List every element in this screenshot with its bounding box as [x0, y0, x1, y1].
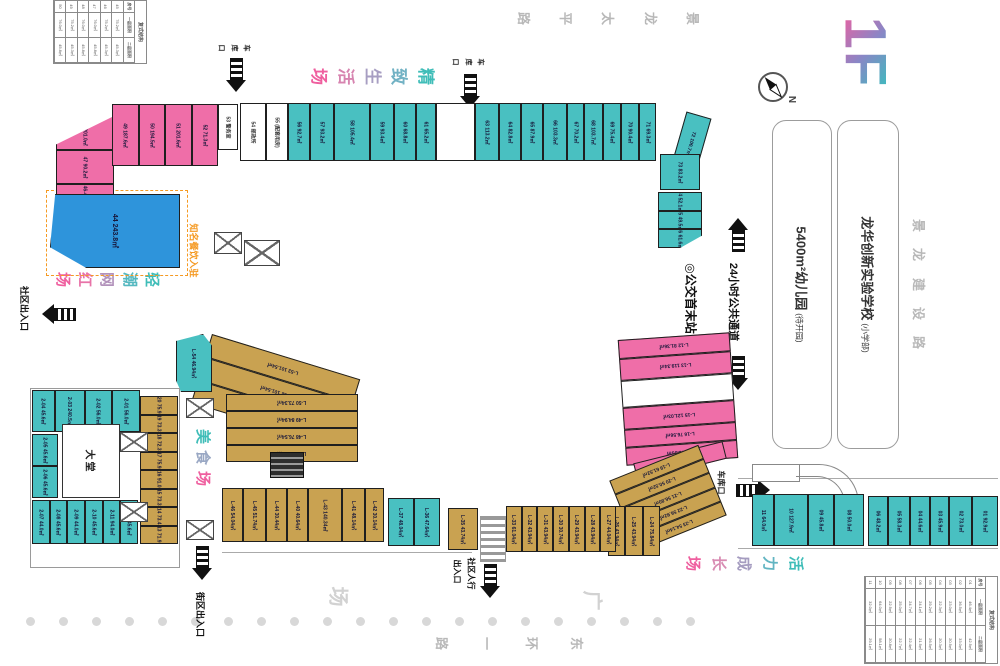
legend-cell: 二层面积	[976, 626, 985, 663]
unit-67[interactable]: 67 70.2㎡	[567, 103, 584, 161]
legend-cell: 45.3㎡	[112, 38, 122, 63]
stair-core-2	[244, 240, 280, 266]
char: 美	[193, 429, 214, 444]
unit-01[interactable]: 01 92.9㎡	[972, 496, 998, 546]
unit-2-16[interactable]: 2-16 91.0㎡	[140, 470, 178, 489]
unit-2-11[interactable]: 2-11 94.0㎡	[103, 500, 121, 544]
unit-L-45[interactable]: L-45 51.74㎡	[243, 488, 266, 542]
unit-64[interactable]: 64 82.8㎡	[499, 103, 521, 161]
tree-icon	[92, 617, 101, 626]
legend-cell: 76.0㎡	[55, 13, 65, 38]
unit-label: 2-15 73.3㎡	[155, 489, 162, 508]
char: 景	[684, 11, 703, 24]
unit-label: 2-05 45.6㎡	[42, 437, 49, 463]
duplex-legend-table-top: 复式结构房号一层面积二层面积4575.2㎡45.3㎡4675.2㎡45.3㎡47…	[53, 0, 147, 64]
tree-icon	[158, 617, 167, 626]
unit-label: 48 201.0㎡	[82, 121, 89, 145]
char: 成	[734, 555, 755, 570]
legend-cell: 02	[956, 577, 965, 589]
char: 路	[515, 11, 534, 24]
unit-68[interactable]: 68 103.7㎡	[584, 103, 602, 161]
unit-60[interactable]: 60 68.8㎡	[394, 103, 416, 161]
restaurant-callout-label: 知名餐饮入驻	[186, 216, 202, 284]
unit-label: 65 87.9㎡	[528, 121, 535, 143]
unit-label: 2-07 44.0㎡	[37, 509, 44, 535]
legend-row: 4675.2㎡45.3㎡	[100, 1, 111, 63]
unit-2-07[interactable]: 2-07 44.0㎡	[32, 500, 50, 544]
unit-L-29[interactable]: L-29 43.94㎡	[569, 506, 585, 552]
unit-label: L-27 44.04㎡	[605, 514, 612, 543]
unit-73: 73 83.2㎡	[660, 154, 700, 190]
unit-label: 2-19 73.3㎡	[155, 415, 162, 434]
tree-icon	[59, 617, 68, 626]
passage-up-arrow	[728, 218, 748, 252]
legend-cell: 76.0㎡	[89, 13, 99, 38]
legend-cell: 24.7㎡	[906, 589, 915, 626]
tree-icon	[26, 617, 35, 626]
escalator-block	[270, 452, 304, 478]
community-left-arrow	[42, 304, 76, 324]
unit-2-19[interactable]: 2-19 73.3㎡	[140, 415, 178, 434]
unit-L-46[interactable]: L-46 54.04㎡	[222, 488, 243, 542]
legend-cell: 50	[55, 1, 65, 13]
unit-2-10[interactable]: 2-10 45.6㎡	[85, 500, 103, 544]
unit-blank[interactable]	[436, 103, 474, 161]
legend-cell: 75.2㎡	[112, 13, 122, 38]
unit-label: 05 58.3㎡	[896, 510, 903, 532]
unit-label: 53 警务室	[225, 116, 232, 138]
road-top-jinglong-taiping: 景龙太平路	[518, 8, 700, 28]
unit-label: 76 61.6㎡	[677, 229, 684, 248]
unit-47[interactable]: 47 90.2㎡	[56, 150, 114, 184]
unit-label: 01 92.9㎡	[982, 510, 989, 532]
unit-09[interactable]: 09 45.8㎡	[808, 494, 834, 546]
cluster-right-col: 74 52.1㎡75 49.5㎡76 61.6㎡	[658, 192, 702, 248]
stair-core-3	[186, 398, 214, 418]
compass-north-label: N	[786, 92, 798, 106]
unit-50[interactable]: 50 194.5㎡	[139, 104, 166, 166]
unit-label: 2-16 91.0㎡	[155, 470, 162, 489]
kindergarten-parcel: 5400m²幼儿园(待开园)	[772, 120, 832, 449]
legend-row: 0236.5㎡33.0㎡	[955, 577, 965, 663]
legend-cell: 11	[866, 577, 875, 589]
legend-cell: 二层面积	[124, 38, 134, 63]
unit-label: L-53 101.54㎡	[266, 360, 299, 376]
legend-cell: 33.0㎡	[956, 626, 965, 663]
legend-row: 4776.0㎡45.8㎡	[88, 1, 99, 63]
unit-61[interactable]: 61 65.2㎡	[416, 103, 436, 161]
legend-cell: 20.8㎡	[886, 626, 895, 663]
unit-05[interactable]: 05 58.3㎡	[888, 496, 910, 546]
unit-2-20[interactable]: 2-20 75.9㎡	[140, 396, 178, 415]
unit-label: 03 45.9㎡	[936, 510, 943, 532]
legend-cell: 03	[946, 577, 955, 589]
char: 生	[362, 68, 387, 85]
unit-L-43[interactable]: L-43 140.34㎡	[308, 488, 342, 542]
unit-L-32[interactable]: L-32 43.94㎡	[522, 506, 538, 552]
tree-icon	[323, 617, 332, 626]
char: 口	[217, 45, 227, 52]
unit-71[interactable]: 71 69.3㎡	[639, 103, 656, 161]
unit-label: 54 邮政所	[249, 121, 256, 143]
char: 环	[523, 636, 542, 649]
unit-label: L-31 43.94㎡	[542, 514, 549, 543]
unit-label: L-33 61.04㎡	[510, 514, 517, 543]
char: 精	[415, 68, 440, 85]
legend-cell: 10	[876, 577, 885, 589]
unit-L-41[interactable]: L-41 48.14㎡	[342, 488, 365, 542]
legend-row: 0146.4㎡42.9㎡	[965, 577, 975, 663]
char: 库	[463, 59, 473, 66]
cluster-growth-b: 06 48.2㎡05 58.3㎡04 44.6㎡03 45.9㎡02 73.0㎡…	[868, 496, 998, 546]
unit-label: 04 44.6㎡	[917, 510, 924, 532]
unit-label: L-28 43.94㎡	[589, 514, 596, 543]
unit-label: 2-17 75.9㎡	[155, 452, 162, 471]
unit-08[interactable]: 08 50.0㎡	[834, 494, 864, 546]
tree-icon	[125, 617, 134, 626]
char: 场	[193, 471, 214, 486]
unit-label: 2-11 94.0㎡	[108, 509, 115, 535]
legend-cell: 房号	[976, 577, 985, 589]
unit-label: L-50 73.34㎡	[277, 399, 306, 406]
unit-label: L-42 30.14㎡	[371, 500, 378, 529]
unit-label: 73 83.2㎡	[677, 161, 684, 183]
legend-cell: 09	[886, 577, 895, 589]
unit-label: 59 93.4㎡	[379, 121, 386, 143]
tree-icon	[389, 617, 398, 626]
duplex-legend-table-bottom: 复式结构房号一层面积二层面积0146.4㎡42.9㎡0236.5㎡33.0㎡03…	[864, 576, 998, 664]
legend-cell: 一层面积	[976, 589, 985, 626]
unit-57[interactable]: 57 93.2㎡	[310, 103, 334, 161]
garage-entrance-top2-label: 车库口	[452, 56, 484, 68]
unit-10[interactable]: 10 127.9㎡	[774, 494, 808, 546]
legend-cell: 49	[66, 1, 76, 13]
unit-2-06[interactable]: 2-06 45.6㎡	[32, 466, 58, 498]
unit-59[interactable]: 59 93.4㎡	[370, 103, 394, 161]
pedestrian-down-arrow	[480, 564, 500, 598]
unit-L-50[interactable]: L-50 73.34㎡	[226, 394, 358, 411]
lobby-hall[interactable]: 大堂	[62, 424, 120, 498]
legend-cell: 75.2㎡	[66, 13, 76, 38]
unit-L-40[interactable]: L-40 40.64㎡	[287, 488, 308, 542]
unit-2-13[interactable]: 2-13 71.9㎡	[140, 526, 178, 545]
unit-label: 2-14 73.4㎡	[155, 507, 162, 526]
char: 口	[451, 59, 461, 66]
school-parcel: 龙华创新实验学校(小学部)	[837, 120, 899, 449]
unit-11[interactable]: 11 64.0㎡	[752, 494, 774, 546]
unit-label: 2-13 71.9㎡	[155, 526, 162, 545]
legend-cell: 64.0㎡	[876, 589, 885, 626]
unit-L-42[interactable]: L-42 30.14㎡	[365, 488, 384, 542]
legend-row: 0323.0㎡20.9㎡	[945, 577, 955, 663]
legend-cell: 48	[78, 1, 88, 13]
unit-label: 56 92.7㎡	[295, 121, 302, 143]
unit-label: 2-02 56.0㎡	[95, 398, 102, 424]
unit-label: 49 187.6㎡	[122, 123, 129, 147]
legend-cell: 一层面积	[124, 13, 134, 38]
unit-L-44[interactable]: L-44 30.44㎡	[266, 488, 287, 542]
unit-label: 71 69.3㎡	[644, 121, 651, 143]
unit-label: 2-01 56.0㎡	[122, 398, 129, 424]
unit-label: L-37 48.04㎡	[398, 507, 405, 536]
stair-core-4	[186, 520, 214, 540]
garage-top1-arrow	[226, 58, 246, 92]
unit-75[interactable]: 75 49.5㎡	[658, 211, 702, 230]
unit-02[interactable]: 02 73.0㎡	[949, 496, 973, 546]
unit-label: 68 103.7㎡	[590, 120, 597, 144]
unit-03[interactable]: 03 45.9㎡	[930, 496, 948, 546]
char: 致	[388, 68, 413, 85]
unit-56[interactable]: 56 92.7㎡	[288, 103, 310, 161]
legend-cell: 45.8㎡	[89, 38, 99, 63]
unit-label: 02 73.0㎡	[957, 510, 964, 532]
zone-label-refined-living: 精致生活场	[312, 64, 436, 88]
tree-icon	[587, 617, 596, 626]
tree-icon	[356, 617, 365, 626]
arcade-line-left	[222, 552, 472, 553]
unit-65[interactable]: 65 87.9㎡	[521, 103, 543, 161]
unit-label: 64 82.8㎡	[506, 121, 513, 143]
char: 库	[229, 45, 239, 52]
legend-cell: 45.3㎡	[101, 38, 111, 63]
unit-L-49[interactable]: L-49 84.94㎡	[226, 411, 358, 428]
plaza-char-chang: 场	[326, 587, 355, 607]
unit-2-05[interactable]: 2-05 45.6㎡	[32, 434, 58, 466]
legend-cell: 29.1㎡	[866, 626, 875, 663]
unit-L-54[interactable]: L-54 46.94㎡	[176, 334, 212, 392]
unit-label: 74 52.1㎡	[677, 192, 684, 211]
legend-row: 1132.0㎡29.1㎡	[865, 577, 875, 663]
unit-70[interactable]: 70 90.4㎡	[621, 103, 639, 161]
unit-L-30[interactable]: L-30 30.74㎡	[553, 506, 569, 552]
block-entrance-bottom-label: 街区出入口	[192, 584, 208, 644]
unit-label: 75 49.5㎡	[677, 211, 684, 230]
legend-cell: 20.9㎡	[946, 626, 955, 663]
char: 路	[910, 336, 929, 349]
cluster-lobby-left-col: 2-05 45.6㎡2-06 45.6㎡	[32, 434, 58, 498]
unit-label: 06 48.2㎡	[875, 510, 882, 532]
unit-label: 2-20 75.9㎡	[155, 396, 162, 415]
char: 东	[568, 636, 587, 649]
char: 食	[193, 450, 214, 465]
garage-entrance-top1-label: 车库口	[218, 42, 250, 54]
unit-51[interactable]: 51 201.6㎡	[165, 104, 192, 166]
unit-2-17[interactable]: 2-17 75.9㎡	[140, 452, 178, 471]
legend-row: 0422.3㎡20.3㎡	[935, 577, 945, 663]
block-bottom-arrow	[192, 546, 212, 580]
unit-L-48[interactable]: L-48 76.54㎡	[226, 428, 358, 445]
legend-cell: 47	[89, 1, 99, 13]
unit-48[interactable]: 48 201.0㎡	[56, 116, 114, 150]
legend-cell: 20.3㎡	[936, 626, 945, 663]
unit-L-37[interactable]: L-37 48.04㎡	[388, 498, 414, 546]
unit-label: 51 201.6㎡	[175, 123, 182, 147]
unit-label: 60 68.8㎡	[402, 121, 409, 143]
legend-cell: 21.9㎡	[916, 626, 925, 663]
unit-label: 2-18 72.3㎡	[155, 433, 162, 452]
unit-49[interactable]: 49 187.6㎡	[112, 104, 139, 166]
road-right-jinglong-jianshe: 景龙建设路	[912, 216, 928, 352]
floor-title-1f: 1F	[822, 6, 908, 98]
unit-label: L-49 84.94㎡	[277, 416, 306, 423]
legend-cell: 76.0㎡	[78, 13, 88, 38]
unit-label: 69 75.4㎡	[608, 121, 615, 143]
unit-label: 63 113.2㎡	[483, 120, 490, 144]
unit-58[interactable]: 58 105.4㎡	[334, 103, 371, 161]
unit-2-08[interactable]: 2-08 45.6㎡	[50, 500, 68, 544]
unit-label: 67 70.2㎡	[572, 121, 579, 143]
legend-cell: 25.0㎡	[896, 589, 905, 626]
unit-label: L-25 43.94㎡	[631, 516, 638, 545]
char: 车	[242, 45, 252, 52]
legend-cell: 房号	[124, 1, 134, 13]
unit-label: L-41 48.14㎡	[350, 500, 357, 529]
char: 活	[335, 68, 360, 85]
legend-title: 复式结构	[985, 577, 997, 663]
unit-label: L-46 54.04㎡	[229, 500, 236, 529]
arcade-line-bottom	[738, 548, 998, 549]
char: 景	[910, 219, 929, 232]
char: 场	[683, 555, 704, 570]
unit-label: 2-04 45.6㎡	[40, 398, 47, 424]
char: 车	[476, 59, 486, 66]
legend-cell: 05	[926, 577, 935, 589]
char: 长	[709, 555, 730, 570]
unit-label: L-36 47.64㎡	[424, 507, 431, 536]
stair-core-5	[120, 432, 148, 452]
legend-row: 0825.0㎡22.7㎡	[895, 577, 905, 663]
tree-icon	[521, 617, 530, 626]
unit-label: L-15 121.03㎡	[663, 410, 695, 419]
legend-cell: 58.1㎡	[876, 626, 885, 663]
unit-L-27[interactable]: L-27 44.04㎡	[600, 506, 616, 552]
legend-row: 0529.2㎡26.5㎡	[925, 577, 935, 663]
unit-label: 58 105.4㎡	[348, 120, 355, 144]
zone-label-vitality: 活力成长场	[686, 552, 804, 574]
char: 太	[599, 11, 618, 24]
unit-54[interactable]: 54 邮政所	[240, 103, 266, 161]
cluster-topleft-pink-cols: 49 187.6㎡50 194.5㎡51 201.6㎡52 71.3㎡	[112, 104, 218, 166]
legend-title: 复式结构	[134, 1, 146, 63]
char: 平	[557, 11, 576, 24]
unit-label: 09 45.8㎡	[818, 509, 825, 531]
unit-label: L-48 76.54㎡	[277, 433, 306, 440]
legend-cell: 75.2㎡	[101, 13, 111, 38]
legend-cell: 42.9㎡	[966, 626, 975, 663]
unit-label: L-32 43.94㎡	[526, 514, 533, 543]
tree-icon	[488, 617, 497, 626]
unit-L-36[interactable]: L-36 47.64㎡	[414, 498, 440, 546]
unit-55[interactable]: 55 (配套用房)	[266, 103, 288, 161]
unit-L-24[interactable]: L-24 75.84㎡	[643, 506, 660, 556]
road-bottom-donghuan-yilu: 东环一路	[436, 634, 584, 652]
unit-label: L-45 51.74㎡	[251, 500, 258, 529]
unit-L-25[interactable]: L-25 43.94㎡	[625, 506, 642, 556]
unit-label: 50 194.5㎡	[148, 123, 155, 147]
unit-69[interactable]: 69 75.4㎡	[603, 103, 621, 161]
tree-icon	[620, 617, 629, 626]
unit-label: 72 100.7㎡	[684, 130, 697, 155]
duct-run	[752, 464, 800, 482]
legend-row: 5076.0㎡45.8㎡	[54, 1, 65, 63]
unit-52[interactable]: 52 71.3㎡	[192, 104, 219, 166]
cluster-mid-tan: L-46 54.04㎡L-45 51.74㎡L-44 30.44㎡L-40 40…	[222, 488, 384, 542]
cluster-top-strip: 54 邮政所55 (配套用房)56 92.7㎡57 93.2㎡58 105.4㎡…	[240, 103, 656, 161]
legend-row: 4575.2㎡45.3㎡	[111, 1, 122, 63]
legend-cell: 22.7㎡	[896, 626, 905, 663]
char: 建	[910, 277, 929, 290]
pedestrian-crossing-hatch	[480, 516, 506, 562]
unit-66[interactable]: 66 103.3㎡	[543, 103, 567, 161]
unit-label: 44 243.8㎡	[110, 214, 120, 248]
unit-63[interactable]: 63 113.2㎡	[475, 103, 499, 161]
unit-label: 57 93.2㎡	[318, 121, 325, 143]
unit-53[interactable]: 53 警务室	[218, 104, 238, 150]
unit-label: L-16 76.56㎡	[666, 430, 696, 439]
unit-L-28[interactable]: L-28 43.94㎡	[585, 506, 601, 552]
cluster-growth-a: 11 64.0㎡10 127.9㎡09 45.8㎡08 50.0㎡	[752, 494, 864, 546]
legend-cell: 22.9㎡	[886, 589, 895, 626]
unit-73[interactable]: 73 83.2㎡	[660, 154, 700, 190]
pedestrian-entrance-label-2: 出入口	[450, 552, 464, 590]
unit-04[interactable]: 04 44.6㎡	[910, 496, 930, 546]
unit-label: 2-08 45.6㎡	[55, 509, 62, 535]
legend-cell: 45.8㎡	[55, 38, 65, 63]
unit-label: L-54 46.94㎡	[191, 348, 198, 377]
tree-icon	[290, 617, 299, 626]
unit-L-31[interactable]: L-31 43.94㎡	[537, 506, 553, 552]
char: 路	[433, 636, 452, 649]
unit-2-09[interactable]: 2-09 44.0㎡	[67, 500, 85, 544]
tree-icon	[686, 617, 695, 626]
unit-label: 10 127.9㎡	[788, 508, 795, 532]
unit-label: 70 90.4㎡	[627, 121, 634, 143]
cluster-bottom-tan-b: L-33 61.04㎡L-32 43.94㎡L-31 43.94㎡L-30 30…	[506, 506, 616, 552]
unit-label: 08 50.0㎡	[846, 509, 853, 531]
unit-53-police: 53 警务室	[218, 104, 238, 150]
community-entrance-left-label: 社区出入口	[16, 278, 32, 338]
tree-icon	[554, 617, 563, 626]
unit-44[interactable]: 44 243.8㎡	[50, 194, 180, 268]
unit-label: 61 65.2㎡	[423, 121, 430, 143]
unit-l54: L-54 46.94㎡	[176, 334, 212, 392]
unit-label: L-29 43.94㎡	[573, 514, 580, 543]
compass-icon	[756, 70, 790, 109]
legend-cell: 08	[896, 577, 905, 589]
legend-cell: 46.4㎡	[966, 589, 975, 626]
char: 龙	[642, 11, 661, 24]
char: 龙	[910, 248, 929, 261]
legend-cell: 45.8㎡	[78, 38, 88, 63]
floor-plan-1f: 景龙太平路 景龙建设路 东环一路 场 广 1F N 5400m²幼儿园(待开园)…	[0, 0, 1000, 666]
unit-label: 52 71.3㎡	[201, 124, 208, 146]
unit-label: 2-03 240.5㎡	[66, 397, 73, 426]
stair-core-6	[120, 502, 148, 522]
legend-row: 4975.2㎡45.3㎡	[65, 1, 76, 63]
legend-cell: 23.0㎡	[946, 589, 955, 626]
unit-L-35[interactable]: L-35 43.74㎡	[448, 508, 478, 550]
unit-L-33[interactable]: L-33 61.04㎡	[506, 506, 522, 552]
cluster-teal-pair: L-37 48.04㎡L-36 47.64㎡	[388, 498, 440, 546]
tree-icon	[224, 617, 233, 626]
unit-label: L-30 30.74㎡	[558, 514, 565, 543]
unit-74[interactable]: 74 52.1㎡	[658, 192, 702, 211]
unit-2-04[interactable]: 2-04 45.6㎡	[32, 390, 55, 432]
tree-icon	[422, 617, 431, 626]
unit-label: 55 (配套用房)	[273, 117, 280, 147]
legend-header-row: 房号一层面积二层面积	[975, 577, 985, 663]
unit-06[interactable]: 06 48.2㎡	[868, 496, 888, 546]
